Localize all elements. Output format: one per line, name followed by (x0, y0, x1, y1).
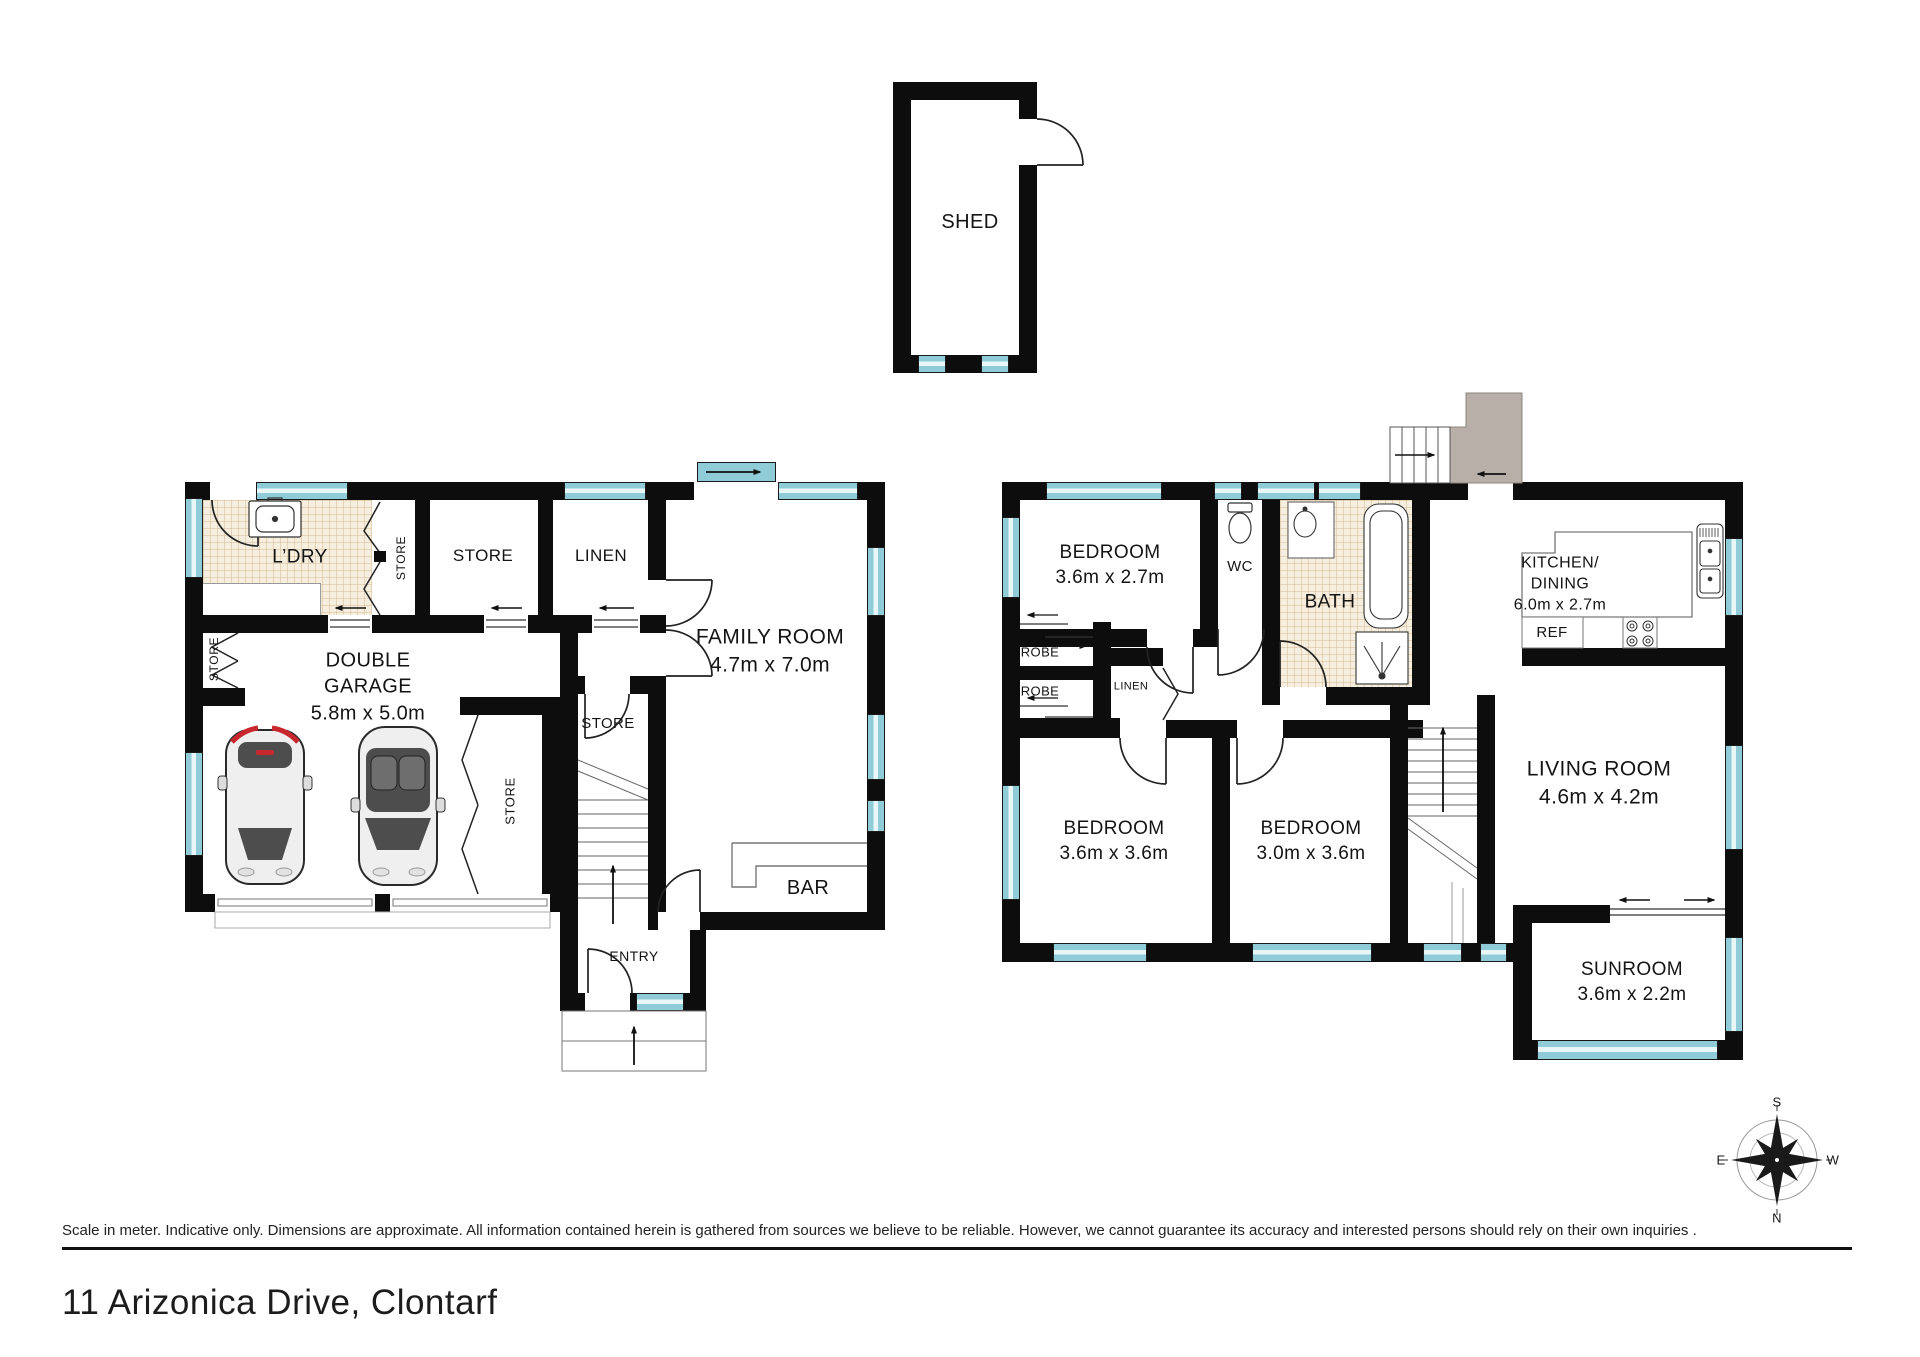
room-label-bedroom2: BEDROOM 3.6m x 3.6m (1060, 816, 1169, 866)
window (1053, 943, 1147, 962)
wall-segment (1513, 905, 1532, 1060)
living-name: LIVING ROOM (1527, 755, 1671, 783)
sunroom-dims: 3.6m x 2.2m (1578, 982, 1687, 1007)
disclaimer-text: Scale in meter. Indicative only. Dimensi… (62, 1222, 1697, 1239)
wall-segment (684, 993, 706, 1011)
room-label-sunroom: SUNROOM 3.6m x 2.2m (1578, 957, 1687, 1007)
footer-divider (62, 1247, 1852, 1250)
room-label-bedroom1: BEDROOM 3.6m x 2.7m (1056, 540, 1165, 590)
compass-east-label: E (1716, 1151, 1725, 1168)
room-label-store-garage: STORE (503, 777, 518, 825)
wall-segment (1326, 687, 1430, 705)
bedroom2-name: BEDROOM (1060, 816, 1169, 841)
wall-segment (415, 500, 430, 615)
wall-segment (1522, 648, 1743, 666)
bifold-linen-hall (1163, 668, 1178, 720)
window (867, 800, 885, 832)
kitchen-sink-icon (1697, 524, 1723, 598)
window (185, 498, 203, 578)
shed-door (1037, 119, 1083, 165)
room-label-robe2: ROBE (1021, 682, 1059, 699)
compass-west-label: W (1827, 1151, 1840, 1168)
room-label-linen-hall: LINEN (1114, 680, 1148, 695)
room-label-store-mid: STORE (581, 714, 634, 734)
wall-segment (538, 500, 553, 615)
laundry-bench (203, 583, 321, 616)
wall-segment (1019, 165, 1037, 373)
window (1046, 482, 1162, 500)
window (1214, 482, 1242, 500)
room-label-laundry: L’DRY (272, 544, 328, 569)
room-label-store-top: STORE (453, 545, 513, 567)
wall-segment (560, 676, 585, 694)
window (1257, 482, 1315, 500)
room-label-entry: ENTRY (609, 947, 658, 965)
compass-cardinal-star (1731, 1114, 1823, 1206)
room-label-bedroom3: BEDROOM 3.0m x 3.6m (1257, 816, 1366, 866)
wall-segment (185, 688, 245, 706)
window (1318, 482, 1361, 500)
bedroom1-name: BEDROOM (1056, 540, 1165, 565)
property-address: 11 Arizonica Drive, Clontarf (62, 1283, 497, 1323)
wall-segment (372, 615, 484, 633)
garage-name: DOUBLE GARAGE (293, 647, 443, 700)
stairs-upper (1408, 728, 1477, 943)
compass-south-label: S (1772, 1093, 1781, 1110)
window (981, 355, 1009, 373)
wall-segment (542, 715, 560, 894)
compass-intercardinal-star (1735, 1118, 1820, 1203)
bedroom1-dims: 3.6m x 2.7m (1056, 565, 1165, 590)
family-double-door-top (666, 580, 712, 626)
bedroom3-name: BEDROOM (1257, 816, 1366, 841)
stairs-ground (578, 760, 648, 898)
wall-segment (648, 500, 666, 580)
fixtures-overlay (0, 0, 1920, 1357)
stove-icon (1623, 617, 1657, 648)
wall-segment (1002, 666, 1111, 680)
family-dims: 4.7m x 7.0m (696, 651, 844, 679)
car-sedan-icon (218, 728, 312, 884)
garage-dims: 5.8m x 5.0m (293, 700, 443, 726)
wall-segment (893, 100, 911, 373)
room-label-garage: DOUBLE GARAGE 5.8m x 5.0m (293, 647, 443, 726)
wall-segment (1019, 100, 1037, 119)
kitchen-name-line2: DINING (1514, 573, 1606, 594)
wall-segment (375, 894, 390, 912)
wall-segment (1212, 720, 1230, 943)
window (185, 752, 203, 856)
wall-segment (1262, 500, 1280, 705)
window (1725, 937, 1743, 1032)
wall-segment (648, 912, 658, 930)
entry-steps (562, 1011, 706, 1071)
window (1725, 745, 1743, 850)
bedroom2-dims: 3.6m x 3.6m (1060, 841, 1169, 866)
bifold-store-garage (462, 715, 478, 894)
window (1002, 785, 1020, 900)
wall-segment (185, 615, 328, 633)
wall-segment (700, 912, 885, 930)
family-room-sliding-door (697, 462, 776, 482)
room-label-bar: BAR (787, 875, 829, 901)
window (1423, 943, 1462, 962)
window (1002, 517, 1020, 598)
wall-segment (648, 676, 666, 912)
wall-segment (560, 633, 578, 912)
wall-segment (560, 993, 585, 1011)
wall-segment (630, 676, 648, 694)
wall-segment (460, 697, 560, 715)
room-label-store-bifold: STORE (394, 536, 408, 580)
wall-segment (550, 894, 578, 912)
window (256, 482, 348, 500)
compass-rose (1712, 1095, 1842, 1225)
room-label-wc: WC (1227, 557, 1253, 577)
wall-segment (1412, 500, 1430, 705)
bedroom3-dims: 3.0m x 3.6m (1257, 841, 1366, 866)
sunroom-slider-lines (1610, 909, 1725, 915)
wall-segment (690, 930, 706, 993)
wall-segment (1477, 695, 1495, 943)
kitchen-sliding-door (1468, 465, 1513, 483)
window (1725, 538, 1743, 616)
room-label-shed: SHED (941, 209, 998, 235)
bifold-pivot-block (374, 551, 386, 562)
room-label-kitchen: KITCHEN/ DINING 6.0m x 2.7m (1514, 552, 1606, 615)
wall-segment (528, 615, 592, 633)
window (636, 993, 684, 1011)
wall-segment (1111, 648, 1163, 666)
car-convertible-icon (351, 727, 445, 885)
floorplan-canvas: SHED L’DRY STORE STORE LINEN DOUBLE GARA… (0, 0, 1920, 1357)
family-name: FAMILY ROOM (696, 623, 844, 651)
wall-segment (185, 894, 215, 912)
window (867, 714, 885, 780)
room-label-bath: BATH (1305, 589, 1356, 614)
window (1480, 943, 1507, 962)
room-label-ref: REF (1536, 623, 1567, 643)
window (1252, 943, 1372, 962)
outdoor-stairs (1390, 427, 1450, 483)
room-label-linen-top: LINEN (575, 545, 627, 567)
window (564, 482, 646, 500)
kitchen-dims: 6.0m x 2.7m (1514, 595, 1606, 616)
wall-segment (1390, 695, 1408, 943)
room-label-living: LIVING ROOM 4.6m x 4.2m (1527, 755, 1671, 810)
window (918, 355, 946, 373)
wall-segment (1200, 500, 1218, 629)
window (867, 547, 885, 616)
wall-segment (1002, 718, 1120, 738)
window (1537, 1040, 1718, 1060)
bedroom2-door (1120, 738, 1166, 784)
toilet-icon (1228, 503, 1252, 543)
wc-door (1218, 629, 1264, 675)
room-label-robe1: ROBE (1021, 643, 1059, 660)
room-label-store-left: STORE (207, 637, 221, 681)
wall-segment (640, 615, 666, 633)
living-dims: 4.6m x 4.2m (1527, 783, 1671, 811)
compass-north-label: N (1772, 1209, 1782, 1226)
wall-segment (1262, 687, 1280, 705)
wall-segment (1193, 629, 1218, 647)
window (778, 482, 858, 500)
bedroom3-door (1237, 738, 1283, 784)
wall-segment (1513, 482, 1743, 500)
wall-segment (893, 82, 1037, 100)
kitchen-name-line1: KITCHEN/ (1514, 552, 1606, 573)
room-label-family: FAMILY ROOM 4.7m x 7.0m (696, 623, 844, 678)
sunroom-name: SUNROOM (1578, 957, 1687, 982)
